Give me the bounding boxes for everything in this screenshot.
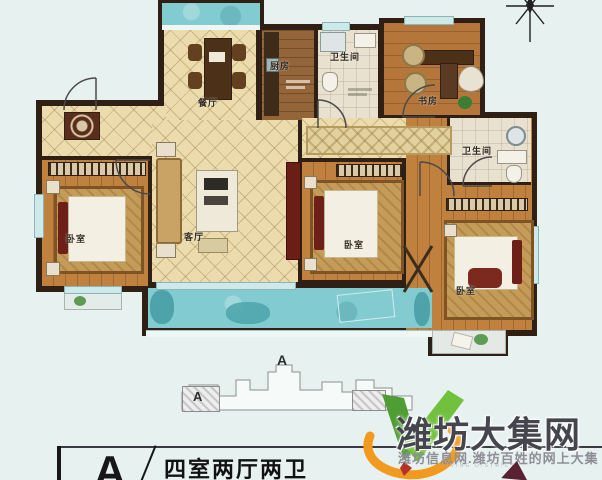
infobox-layout-text: 四室两厅两卫	[164, 452, 308, 480]
label-dining: 餐厅	[198, 96, 218, 109]
label-study: 书房	[418, 94, 438, 107]
keyplan-tower-a-label: A	[277, 352, 287, 368]
label-bedroom-br: 卧室	[456, 284, 476, 297]
infobox-unit-letter: A	[94, 450, 126, 480]
label-bath-right: 卫生间	[462, 144, 492, 157]
label-bedroom-mid: 卧室	[344, 238, 364, 251]
infobox-left-border	[57, 446, 61, 480]
watermark-tagline: LIVING DISTRICT	[442, 463, 516, 469]
floorplan-page: 餐厅 厨房 卫生间 书房 卧室 客厅 卧室 卫生间 卧室 A A A 四室两厅两…	[0, 0, 602, 480]
compass-icon	[506, 0, 554, 42]
drying-rack-x	[404, 246, 432, 292]
keyplan-unit-a-label: A	[193, 389, 202, 404]
label-bath-top: 卫生间	[330, 50, 360, 63]
label-bedroom-left: 卧室	[66, 232, 86, 245]
label-kitchen: 厨房	[270, 59, 290, 72]
label-living: 客厅	[184, 230, 204, 243]
